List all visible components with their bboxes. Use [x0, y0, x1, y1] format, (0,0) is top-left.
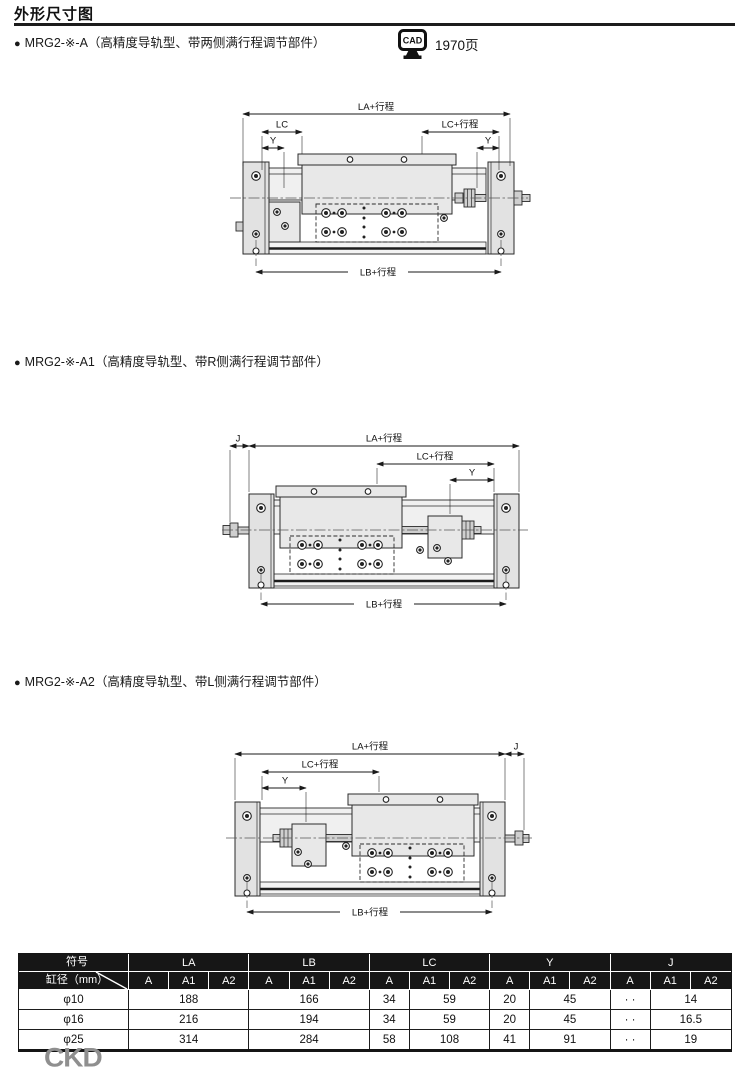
dim-label-la: LA+行程 — [358, 101, 395, 113]
drawing-mrg2-a1: J LA+行程 LC+行程 Y LB+行程 — [222, 430, 532, 620]
sub-header: A2 — [570, 972, 610, 990]
cell-la: 188 — [129, 990, 249, 1010]
section-heading-a: ●MRG2-※-A（高精度导轨型、带两侧满行程调节部件） — [14, 32, 325, 51]
cell-lc-a: 34 — [370, 1010, 410, 1030]
cell-lc-a: 34 — [370, 990, 410, 1010]
dim-label-lb: LB+行程 — [360, 267, 397, 279]
cell-lb: 284 — [249, 1030, 369, 1049]
dim-label-lc-left: LC — [276, 120, 288, 131]
cell-j-a: · · — [611, 1010, 651, 1030]
page-title: 外形尺寸图 — [14, 3, 94, 24]
dim-label-j: J — [514, 742, 519, 753]
dimension-table: 符号 缸径（mm） LA LB LC Y J A A1 A2 A A1 A2 A… — [18, 953, 732, 1052]
cell-bore: φ10 — [19, 990, 129, 1010]
section-heading-a1: ●MRG2-※-A1（高精度导轨型、带R侧满行程调节部件） — [14, 351, 329, 370]
drawing-mrg2-a: LA+行程 LC LC+行程 Y Y LB+行程 — [222, 96, 532, 291]
cad-icon-label: CAD — [403, 35, 423, 45]
section-heading-a2-label: MRG2-※-A2（高精度导轨型、带L侧满行程调节部件） — [25, 675, 327, 689]
drawing-mrg2-a2: LA+行程 J LC+行程 Y LB+行程 — [222, 738, 532, 928]
cell-j-a: · · — [611, 990, 651, 1010]
dim-label-lc-right: LC+行程 — [442, 119, 479, 131]
cylinder-body-a1 — [222, 486, 528, 600]
group-header-y: Y — [490, 954, 610, 972]
cell-lc-a: 58 — [370, 1030, 410, 1049]
sub-header: A2 — [691, 972, 731, 990]
sub-header: A2 — [209, 972, 249, 990]
cell-la: 216 — [129, 1010, 249, 1030]
cell-la: 314 — [129, 1030, 249, 1049]
cell-y-a1a2: 45 — [530, 990, 610, 1010]
sub-header: A1 — [169, 972, 209, 990]
catalog-page: 外形尺寸图 ●MRG2-※-A（高精度导轨型、带两侧满行程调节部件） CAD 1… — [0, 0, 750, 1073]
dim-label-j: J — [236, 434, 241, 445]
dim-label-lc: LC+行程 — [302, 759, 339, 771]
sub-header: A — [490, 972, 530, 990]
sub-header: A1 — [530, 972, 570, 990]
sub-header: A — [129, 972, 169, 990]
dim-label-lc: LC+行程 — [417, 451, 454, 463]
cell-lc-a1a2: 59 — [410, 1010, 490, 1030]
section-heading-a1-label: MRG2-※-A1（高精度导轨型、带R侧满行程调节部件） — [25, 355, 329, 369]
dim-label-y-right: Y — [485, 136, 492, 147]
bullet-icon: ● — [14, 677, 21, 689]
table-row: φ25 314 284 58 108 41 91 · · 19 — [19, 1030, 731, 1049]
bullet-icon: ● — [14, 38, 21, 50]
title-rule — [14, 23, 735, 26]
sub-header: A1 — [290, 972, 330, 990]
sub-header: A2 — [450, 972, 490, 990]
corner-symbol-label: 符号 — [19, 954, 128, 972]
bullet-icon: ● — [14, 357, 21, 369]
dim-label-la: LA+行程 — [352, 741, 389, 753]
section-heading-a2: ●MRG2-※-A2（高精度导轨型、带L侧满行程调节部件） — [14, 671, 327, 690]
group-header-lc: LC — [370, 954, 490, 972]
cell-lb: 194 — [249, 1010, 369, 1030]
section-heading-a-label: MRG2-※-A（高精度导轨型、带两侧满行程调节部件） — [25, 36, 326, 50]
dim-label-la: LA+行程 — [366, 433, 403, 445]
table-row: φ16 216 194 34 59 20 45 · · 16.5 — [19, 1010, 731, 1030]
sub-header: A1 — [410, 972, 450, 990]
cell-j-a: · · — [611, 1030, 651, 1049]
cad-monitor-icon: CAD — [397, 29, 428, 60]
sub-header: A — [370, 972, 410, 990]
sub-header: A — [249, 972, 289, 990]
cell-lc-a1a2: 59 — [410, 990, 490, 1010]
table-row: φ10 188 166 34 59 20 45 · · 14 — [19, 990, 731, 1010]
dim-label-y: Y — [469, 468, 476, 479]
cell-j-a1a2: 14 — [651, 990, 731, 1010]
cad-page-ref: 1970页 — [435, 34, 479, 54]
cell-lb: 166 — [249, 990, 369, 1010]
cell-bore: φ16 — [19, 1010, 129, 1030]
corner-diagonal — [94, 972, 128, 989]
sub-header: A2 — [330, 972, 370, 990]
sub-header: A — [611, 972, 651, 990]
cylinder-body-a2 — [226, 794, 532, 908]
cell-y-a: 41 — [490, 1030, 530, 1049]
group-header-j: J — [611, 954, 732, 972]
cell-y-a: 20 — [490, 1010, 530, 1030]
cell-j-a1a2: 16.5 — [651, 1010, 731, 1030]
corner-header: 符号 缸径（mm） — [19, 954, 129, 990]
dim-label-lb: LB+行程 — [366, 599, 403, 611]
dim-label-y-left: Y — [270, 136, 277, 147]
group-header-lb: LB — [249, 954, 369, 972]
cad-badge: CAD 1970页 — [397, 28, 479, 60]
cell-j-a1a2: 19 — [651, 1030, 731, 1049]
group-header-la: LA — [129, 954, 249, 972]
cell-y-a1a2: 45 — [530, 1010, 610, 1030]
dim-label-lb: LB+行程 — [352, 907, 389, 919]
cell-y-a1a2: 91 — [530, 1030, 610, 1049]
sub-header: A1 — [651, 972, 691, 990]
dim-label-y: Y — [282, 776, 289, 787]
ckd-logo: CKD — [44, 1043, 102, 1073]
cylinder-body-a — [230, 154, 530, 266]
cell-y-a: 20 — [490, 990, 530, 1010]
cell-lc-a1a2: 108 — [410, 1030, 490, 1049]
